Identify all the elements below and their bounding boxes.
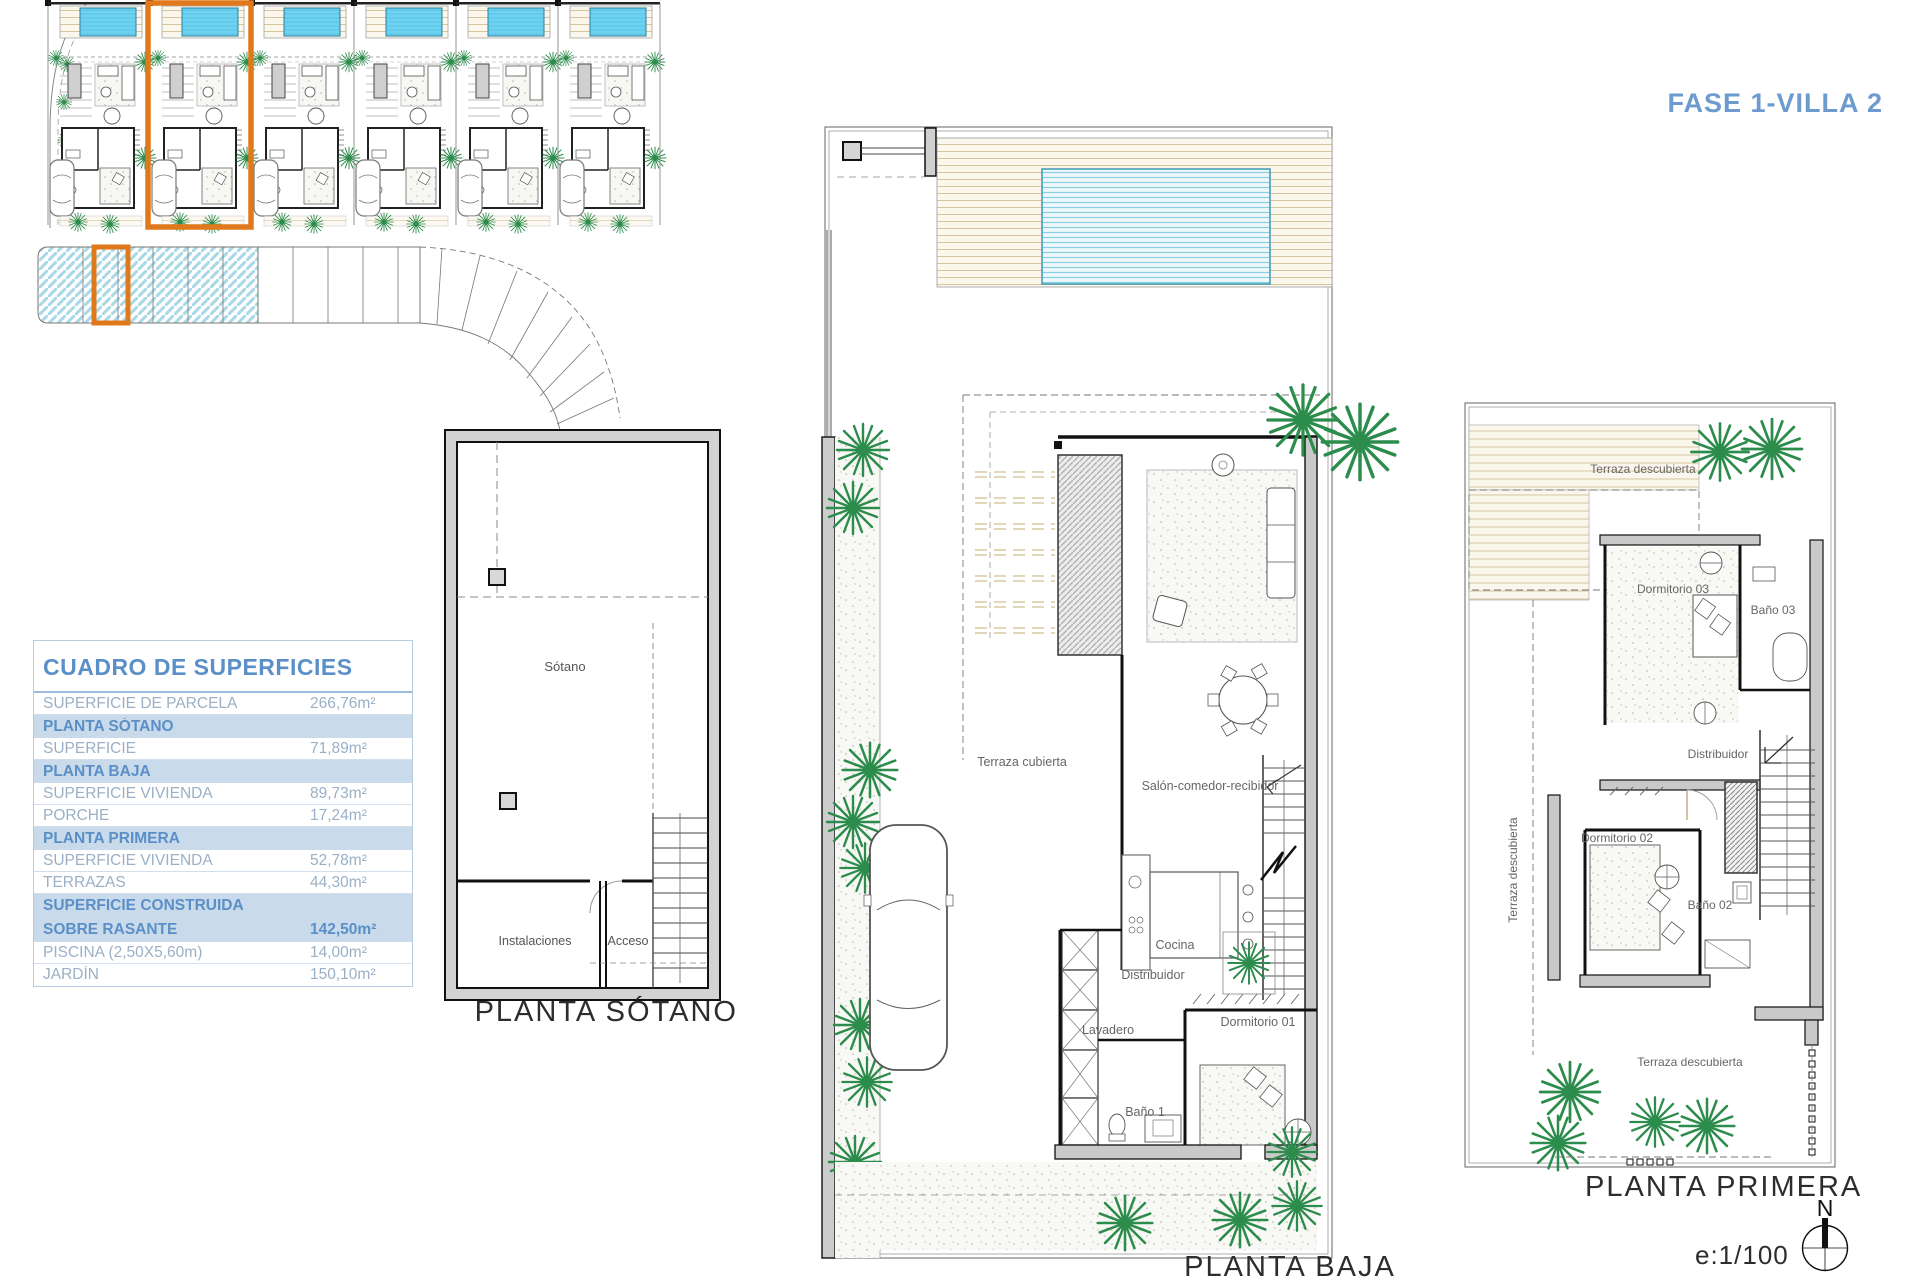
page-title: FASE 1-VILLA 2 <box>1593 88 1883 119</box>
room-label-dormitorio-01: Dormitorio 01 <box>1220 1015 1295 1029</box>
row-label: SUPERFICIE <box>43 740 310 758</box>
row-value: 142,50m² <box>310 921 412 939</box>
room-label-lavadero: Lavadero <box>1082 1023 1134 1037</box>
plan-title-planta-primera: PLANTA PRIMERA <box>1585 1171 1820 1204</box>
row-label: PLANTA PRIMERA <box>43 830 310 848</box>
room-label-distribuidor-p1: Distribuidor <box>1688 747 1749 761</box>
row-label: SUPERFICIE VIVIENDA <box>43 785 310 803</box>
room-label-bano-02: Baño 02 <box>1688 898 1733 912</box>
plan-title-planta-baja: PLANTA BAJA <box>1145 1251 1435 1284</box>
row-value: 150,10m² <box>310 966 412 984</box>
row-label: PLANTA SÓTANO <box>43 718 310 736</box>
row-value: 44,30m² <box>310 874 412 892</box>
row-label: PISCINA (2,50X5,60m) <box>43 944 310 962</box>
row-label: PLANTA BAJA <box>43 763 310 781</box>
ground-floor-plan: Terraza cubierta Salón-comedor-recibidor… <box>815 120 1425 1280</box>
table-section-row: PLANTA BAJA <box>34 760 412 783</box>
table-row: SUPERFICIE VIVIENDA 89,73m² <box>34 783 412 805</box>
drawing-scale: e:1/100 <box>1695 1240 1805 1271</box>
north-label: N <box>1817 1195 1834 1221</box>
room-label-bano-03: Baño 03 <box>1751 603 1796 617</box>
pool <box>1042 169 1270 284</box>
parking-hatched-area <box>38 247 258 323</box>
room-label-terraza-cubierta: Terraza cubierta <box>977 755 1067 769</box>
room-label-sotano: Sótano <box>544 659 585 674</box>
basement-floor-plan: Sótano Instalaciones Acceso <box>440 423 740 1003</box>
table-row: PORCHE 17,24m² <box>34 805 412 827</box>
room-label-distribuidor: Distribuidor <box>1121 968 1184 982</box>
room-label-dormitorio-03: Dormitorio 03 <box>1637 582 1709 596</box>
room-label-terraza-bottom: Terraza descubierta <box>1637 1055 1743 1069</box>
row-label: TERRAZAS <box>43 874 310 892</box>
row-label: SUPERFICIE VIVIENDA <box>43 852 310 870</box>
room-label-bano-1: Baño 1 <box>1125 1105 1165 1119</box>
table-row: SUPERFICIE VIVIENDA 52,78m² <box>34 850 412 872</box>
table-row: SUPERFICIE DE PARCELA 266,76m² <box>34 693 412 715</box>
room-label-dormitorio-02: Dormitorio 02 <box>1581 831 1653 845</box>
row-label: SUPERFICIE DE PARCELA <box>43 695 310 713</box>
plan-title-planta-sotano: PLANTA SÓTANO <box>450 996 738 1029</box>
surfaces-table: CUADRO DE SUPERFICIES SUPERFICIE DE PARC… <box>33 640 413 987</box>
table-row: SUPERFICIE 71,89m² <box>34 738 412 760</box>
room-label-instalaciones: Instalaciones <box>499 934 572 948</box>
row-label: SUPERFICIE CONSTRUIDA <box>43 897 310 915</box>
row-label: JARDÍN <box>43 966 310 984</box>
table-section-row: PLANTA SÓTANO <box>34 715 412 738</box>
row-value: 17,24m² <box>310 807 412 825</box>
room-label-salon: Salón-comedor-recibidor <box>1142 779 1279 793</box>
row-value: 52,78m² <box>310 852 412 870</box>
row-value: 266,76m² <box>310 695 412 713</box>
table-section-row: SUPERFICIE CONSTRUIDA <box>34 894 412 918</box>
surfaces-table-title: CUADRO DE SUPERFICIES <box>34 641 412 693</box>
table-section-row: PLANTA PRIMERA <box>34 827 412 850</box>
room-label-terraza-left: Terraza descubierta <box>1506 817 1520 923</box>
row-value: 89,73m² <box>310 785 412 803</box>
first-floor-plan: Terraza descubierta Dormitorio 03 Baño 0… <box>1455 395 1875 1185</box>
site-plan <box>30 0 675 440</box>
table-row: JARDÍN 150,10m² <box>34 964 412 986</box>
table-row: TERRAZAS 44,30m² <box>34 872 412 894</box>
table-row: PISCINA (2,50X5,60m) 14,00m² <box>34 942 412 964</box>
row-value: 14,00m² <box>310 944 412 962</box>
room-label-acceso: Acceso <box>608 934 649 948</box>
row-value: 71,89m² <box>310 740 412 758</box>
room-label-terraza-top: Terraza descubierta <box>1590 462 1696 476</box>
row-label: PORCHE <box>43 807 310 825</box>
row-label: SOBRE RASANTE <box>43 921 310 939</box>
table-section-row: SOBRE RASANTE 142,50m² <box>34 918 412 942</box>
room-label-cocina: Cocina <box>1156 938 1195 952</box>
